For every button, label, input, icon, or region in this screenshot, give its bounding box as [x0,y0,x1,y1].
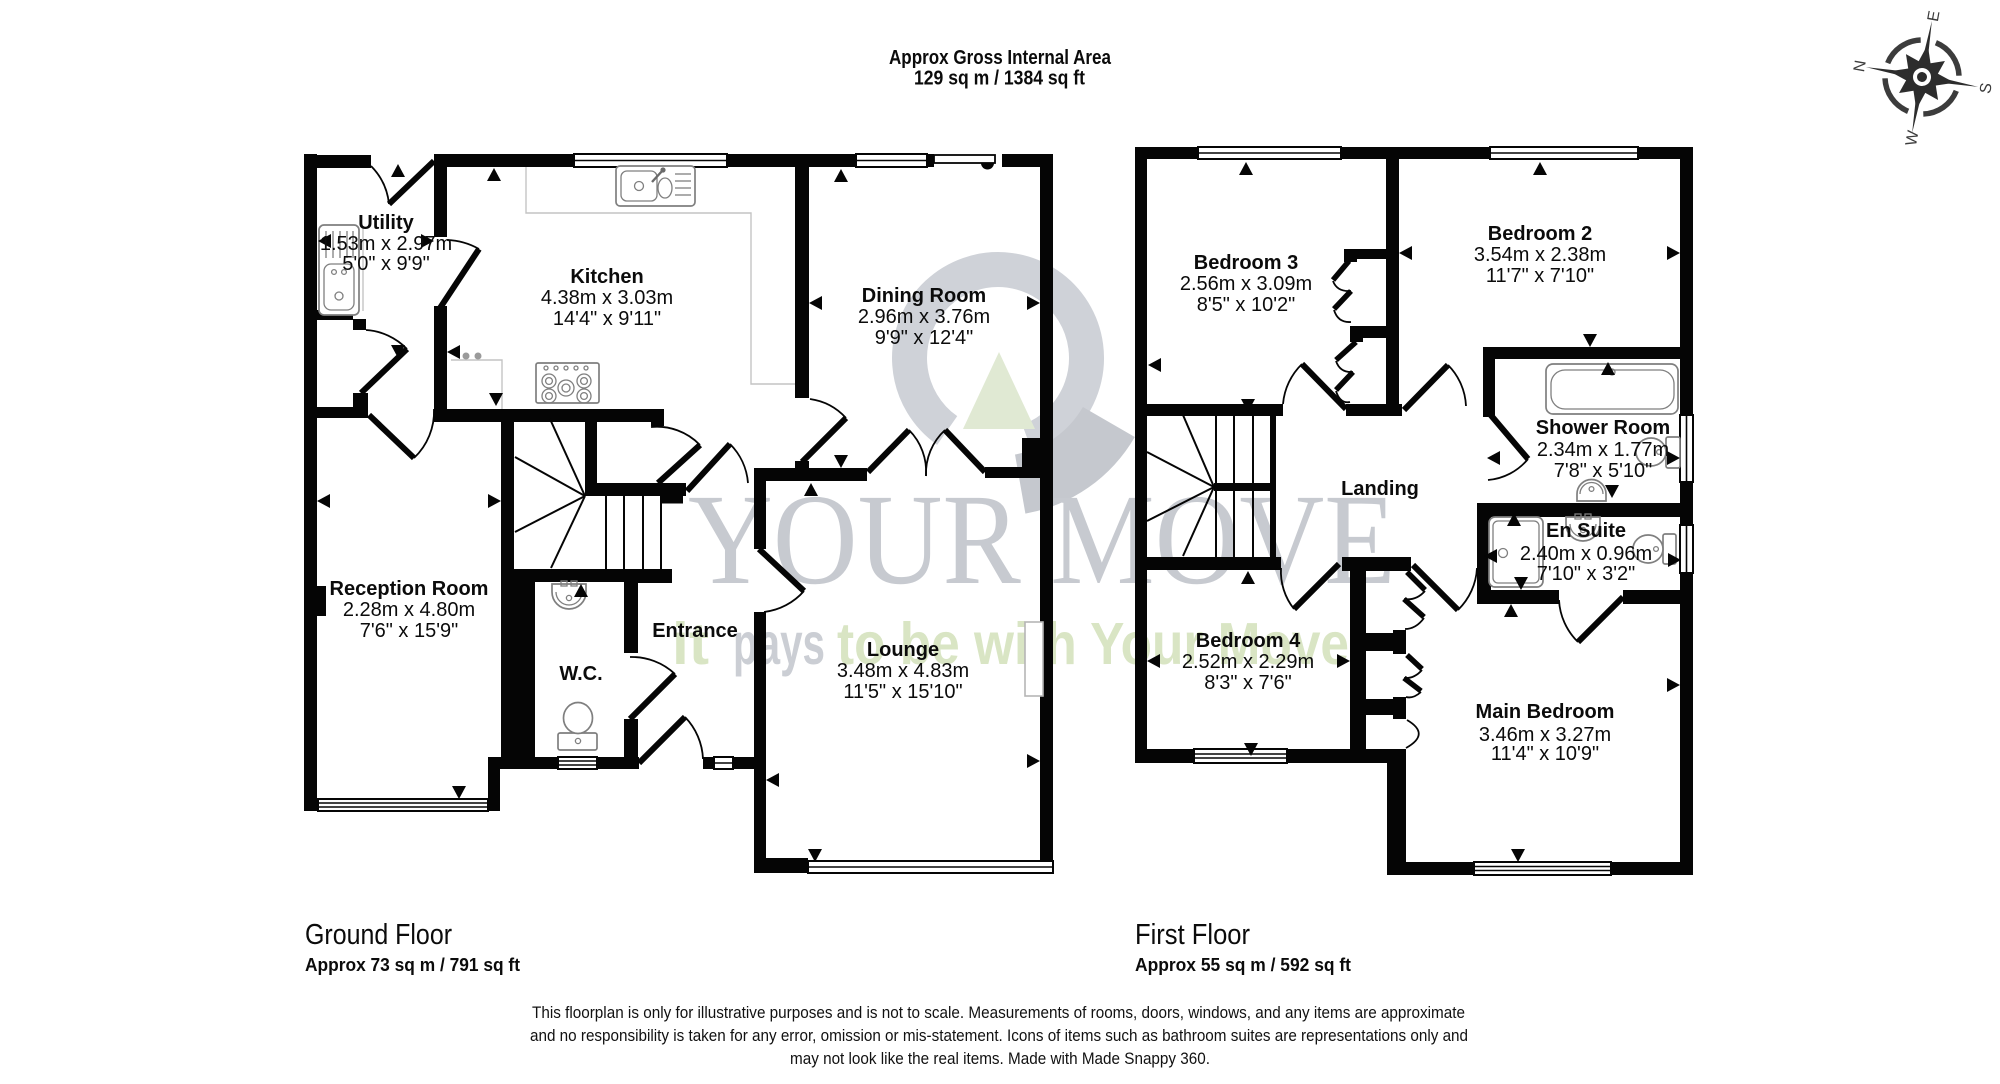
svg-text:129 sq m / 1384 sq ft: 129 sq m / 1384 sq ft [914,68,1085,90]
svg-text:4.38m x 3.03m: 4.38m x 3.03m [541,287,673,309]
svg-text:Shower Room: Shower Room [1536,417,1670,439]
svg-text:2.28m x 4.80m: 2.28m x 4.80m [343,599,475,621]
svg-text:W.C.: W.C. [559,663,602,685]
svg-text:Dining Room: Dining Room [862,285,986,307]
svg-text:2.96m x 3.76m: 2.96m x 3.76m [858,306,990,328]
svg-text:3.54m x 2.38m: 3.54m x 2.38m [1474,244,1606,266]
svg-text:11'5" x 15'10": 11'5" x 15'10" [843,681,962,703]
svg-text:pays: pays [733,611,825,677]
svg-text:7'8" x 5'10": 7'8" x 5'10" [1554,460,1653,482]
svg-text:Kitchen: Kitchen [570,266,643,288]
svg-text:First Floor: First Floor [1135,919,1250,951]
svg-text:Bedroom 2: Bedroom 2 [1488,223,1592,245]
svg-text:7'6" x 15'9": 7'6" x 15'9" [360,620,459,642]
svg-text:2.40m x 0.96m: 2.40m x 0.96m [1520,543,1652,565]
svg-text:8'5" x 10'2": 8'5" x 10'2" [1197,294,1296,316]
svg-text:Main Bedroom: Main Bedroom [1476,701,1615,723]
svg-text:Approx 73 sq m / 791 sq ft: Approx 73 sq m / 791 sq ft [305,955,520,975]
svg-text:Lounge: Lounge [867,639,939,661]
svg-text:Utility: Utility [358,212,414,234]
svg-text:2.34m x 1.77m: 2.34m x 1.77m [1537,439,1669,461]
svg-text:Approx Gross Internal Area: Approx Gross Internal Area [889,47,1112,69]
svg-text:1.53m x 2.97m: 1.53m x 2.97m [320,233,452,255]
svg-text:Bedroom 3: Bedroom 3 [1194,252,1298,274]
svg-text:8'3" x 7'6": 8'3" x 7'6" [1204,672,1291,694]
svg-text:9'9" x 12'4": 9'9" x 12'4" [875,327,974,349]
svg-text:This floorplan is only for ill: This floorplan is only for illustrative … [532,1003,1465,1022]
svg-text:may not look like the real ite: may not look like the real items. Made w… [790,1049,1210,1068]
svg-text:2.52m x 2.29m: 2.52m x 2.29m [1182,651,1314,673]
svg-text:Entrance: Entrance [652,620,738,642]
svg-text:11'4" x 10'9": 11'4" x 10'9" [1491,743,1599,765]
svg-text:2.56m x 3.09m: 2.56m x 3.09m [1180,273,1312,295]
svg-text:11'7" x 7'10": 11'7" x 7'10" [1486,265,1594,287]
svg-text:Approx 55 sq m / 592 sq ft: Approx 55 sq m / 592 sq ft [1135,955,1351,975]
svg-text:5'0" x 9'9": 5'0" x 9'9" [342,253,429,275]
svg-text:14'4" x 9'11": 14'4" x 9'11" [553,308,661,330]
svg-text:Ground Floor: Ground Floor [305,919,452,951]
svg-text:7'10" x 3'2": 7'10" x 3'2" [1537,563,1636,585]
svg-text:Landing: Landing [1341,478,1419,500]
svg-text:and no responsibility is taken: and no responsibility is taken for any e… [530,1026,1468,1045]
svg-text:Bedroom 4: Bedroom 4 [1196,630,1301,652]
svg-text:3.48m x 4.83m: 3.48m x 4.83m [837,660,969,682]
svg-text:En Suite: En Suite [1546,520,1626,542]
svg-text:Reception Room: Reception Room [330,578,489,600]
